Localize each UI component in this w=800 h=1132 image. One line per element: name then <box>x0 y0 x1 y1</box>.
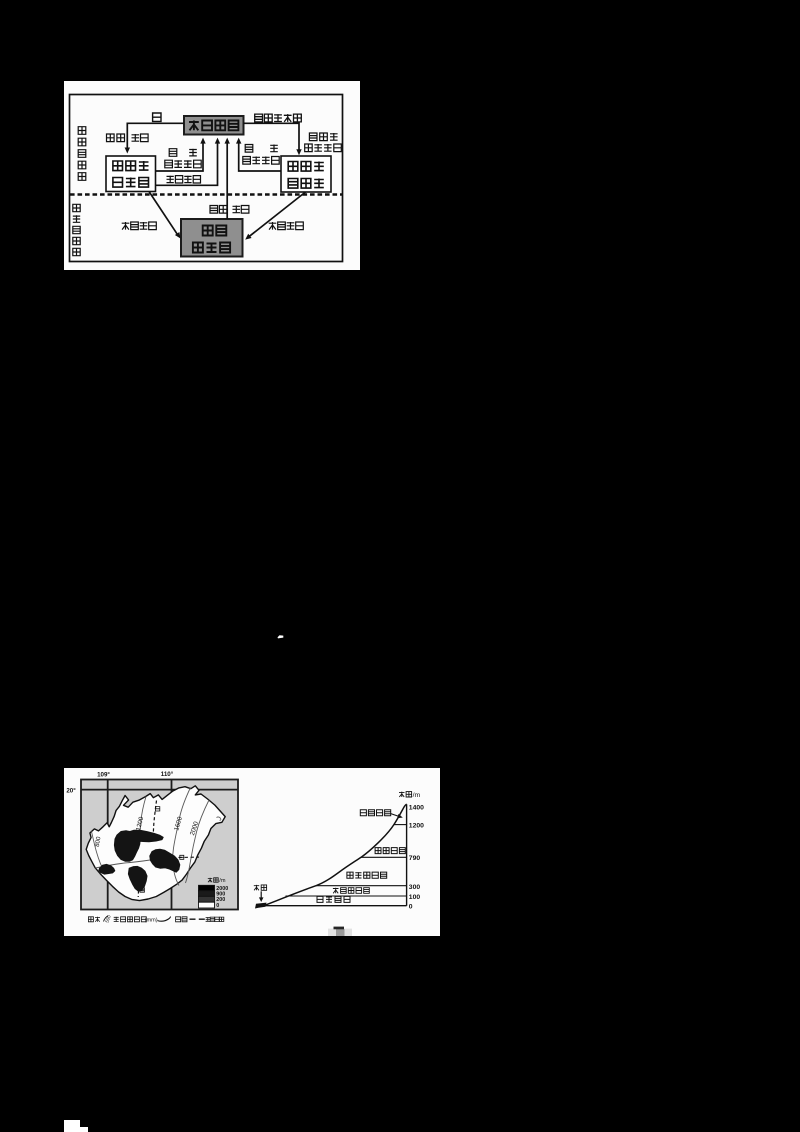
svg-text:109°: 109° <box>97 772 110 779</box>
svg-text:/m: /m <box>219 878 226 884</box>
svg-text:790: 790 <box>409 855 421 862</box>
svg-text:1400: 1400 <box>409 804 424 811</box>
svg-text:20°: 20° <box>66 787 76 794</box>
svg-text:0: 0 <box>409 904 413 911</box>
svg-text:/m: /m <box>413 792 421 799</box>
svg-text:1200: 1200 <box>409 822 424 829</box>
svg-text:(mm): (mm) <box>145 917 158 923</box>
svg-text:110°: 110° <box>161 771 174 778</box>
svg-text:500: 500 <box>104 914 111 923</box>
svg-text:300: 300 <box>409 884 421 891</box>
svg-text:100: 100 <box>409 894 421 901</box>
svg-text:0: 0 <box>216 903 219 909</box>
